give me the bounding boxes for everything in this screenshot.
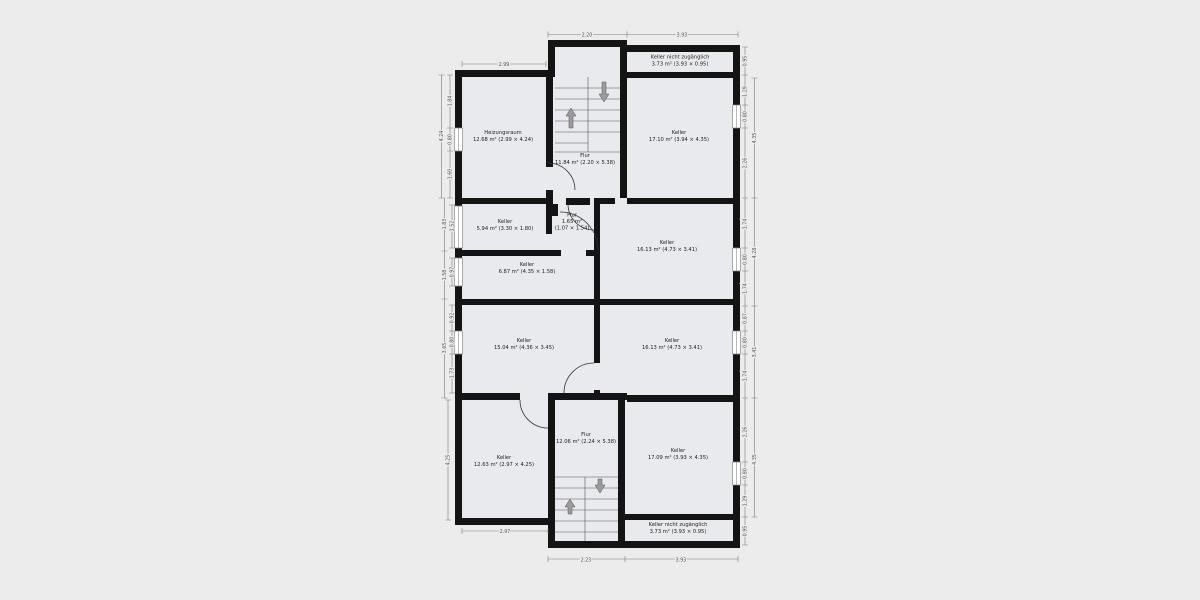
room-name: Keller — [517, 338, 532, 344]
dim-label: 1.52 — [450, 221, 456, 232]
dim-label: 1.29 — [743, 86, 749, 97]
dim-label: 3.41 — [752, 347, 758, 358]
dim-label: 0.80 — [450, 337, 456, 348]
wall — [550, 393, 627, 400]
dim-label: 1.74 — [743, 371, 749, 382]
wall — [620, 45, 740, 52]
dim-label: 4.25 — [446, 455, 452, 466]
wall — [625, 514, 733, 520]
room-area: 3.73 m² (3.93 × 0.95) — [652, 62, 709, 68]
dim-label: 0.80 — [743, 468, 749, 479]
dim-label: 1.60 — [448, 169, 454, 180]
wall — [455, 70, 553, 77]
dim-label: 4.24 — [439, 131, 445, 142]
dim-label: 1.84 — [448, 96, 454, 107]
floorplan: 2.99 2.20 3.93 2.97 2.23 3.93 4.24 1.84 … — [0, 0, 1200, 600]
wall — [455, 393, 520, 400]
room-area: 15.04 m² (4.36 × 3.45) — [494, 345, 554, 351]
room-name: Keller — [665, 338, 680, 344]
dim-label: 3.65 — [442, 343, 448, 354]
dim-label: 2.23 — [581, 558, 592, 564]
dim-label: 0.80 — [743, 254, 749, 265]
wall — [455, 518, 555, 525]
room-area: 3.73 m² (3.93 × 0.95) — [650, 529, 707, 535]
dim-label: 4.35 — [752, 454, 758, 465]
dim-label: 1.29 — [743, 496, 749, 507]
dim-label: 3.93 — [677, 33, 688, 39]
wall — [627, 395, 733, 402]
dim-label: 0.95 — [743, 56, 749, 67]
room-name: Keller — [497, 455, 512, 461]
dim-label: 1.58 — [442, 270, 448, 281]
dim-label: 2.99 — [499, 62, 510, 68]
room-name: Flur — [567, 213, 578, 219]
room-area: 1.65 m² — [562, 219, 582, 225]
room-name: Flur — [581, 432, 592, 438]
dim-label: 0.80 — [448, 134, 454, 145]
room-area: 6.87 m² (4.35 × 1.58) — [499, 269, 556, 275]
dim-label: 2.26 — [743, 427, 749, 438]
wall — [548, 541, 740, 548]
dim-label: 1.74 — [743, 219, 749, 230]
dim-label: 2.97 — [500, 529, 511, 535]
dim-label: 0.92 — [450, 313, 456, 324]
dim-label: 1.73 — [450, 368, 456, 379]
wall — [586, 250, 600, 256]
dim-label: 2.26 — [743, 158, 749, 169]
wall — [627, 72, 733, 78]
room-dims: (1.07 × 1.54) — [555, 226, 590, 232]
dim-label: 4.28 — [752, 248, 758, 259]
room-name: Heizungsraum — [484, 130, 521, 136]
wall — [618, 393, 625, 548]
room-name: Keller — [520, 262, 535, 268]
dim-label: 0.87 — [743, 313, 749, 324]
wall — [594, 305, 600, 363]
dim-label: 0.95 — [743, 526, 749, 537]
dim-label: 3.93 — [676, 558, 687, 564]
wall — [455, 250, 561, 256]
room-name: Keller nicht zugänglich — [651, 55, 710, 61]
room-name: Keller — [671, 448, 686, 454]
wall — [620, 52, 627, 198]
wall — [566, 198, 590, 205]
room-area: 16.13 m² (4.73 × 3.41) — [637, 247, 697, 253]
room-name: Keller — [498, 219, 513, 225]
room-name: Flur — [580, 153, 591, 159]
base-right-block — [620, 45, 740, 548]
dim-label: 4.35 — [752, 133, 758, 144]
dim-label: 0.80 — [743, 337, 749, 348]
wall — [600, 198, 615, 204]
base-stair-tower — [548, 40, 627, 548]
room-area: 12.06 m² (2.24 × 5.38) — [556, 439, 616, 445]
dim-label: 2.20 — [582, 33, 593, 39]
dim-label: 0.97 — [450, 267, 456, 278]
wall — [546, 70, 553, 167]
floorplan-page: 2.99 2.20 3.93 2.97 2.23 3.93 4.24 1.84 … — [0, 0, 1200, 600]
dim-label: 1.74 — [743, 283, 749, 294]
room-area: 17.09 m² (3.93 × 4.35) — [648, 455, 708, 461]
room-name: Keller — [672, 130, 687, 136]
wall — [627, 198, 733, 204]
room-area: 12.68 m² (2.99 × 4.24) — [473, 137, 533, 143]
room-area: 11.84 m² (2.20 × 5.38) — [555, 160, 615, 166]
dim-label: 1.83 — [442, 219, 448, 230]
dim-label: 0.80 — [743, 111, 749, 122]
room-name: Keller nicht zugänglich — [649, 522, 708, 528]
wall — [548, 40, 627, 47]
wall — [546, 204, 552, 234]
room-name: Keller — [660, 240, 675, 246]
wall — [455, 198, 553, 204]
room-area: 17.10 m² (3.94 × 4.35) — [649, 137, 709, 143]
room-area: 5.94 m² (3.30 × 1.80) — [477, 226, 534, 232]
room-area: 16.13 m² (4.73 × 3.41) — [642, 345, 702, 351]
wall — [552, 204, 558, 216]
wall — [455, 299, 740, 305]
room-area: 12.63 m² (2.97 × 4.25) — [474, 462, 534, 468]
